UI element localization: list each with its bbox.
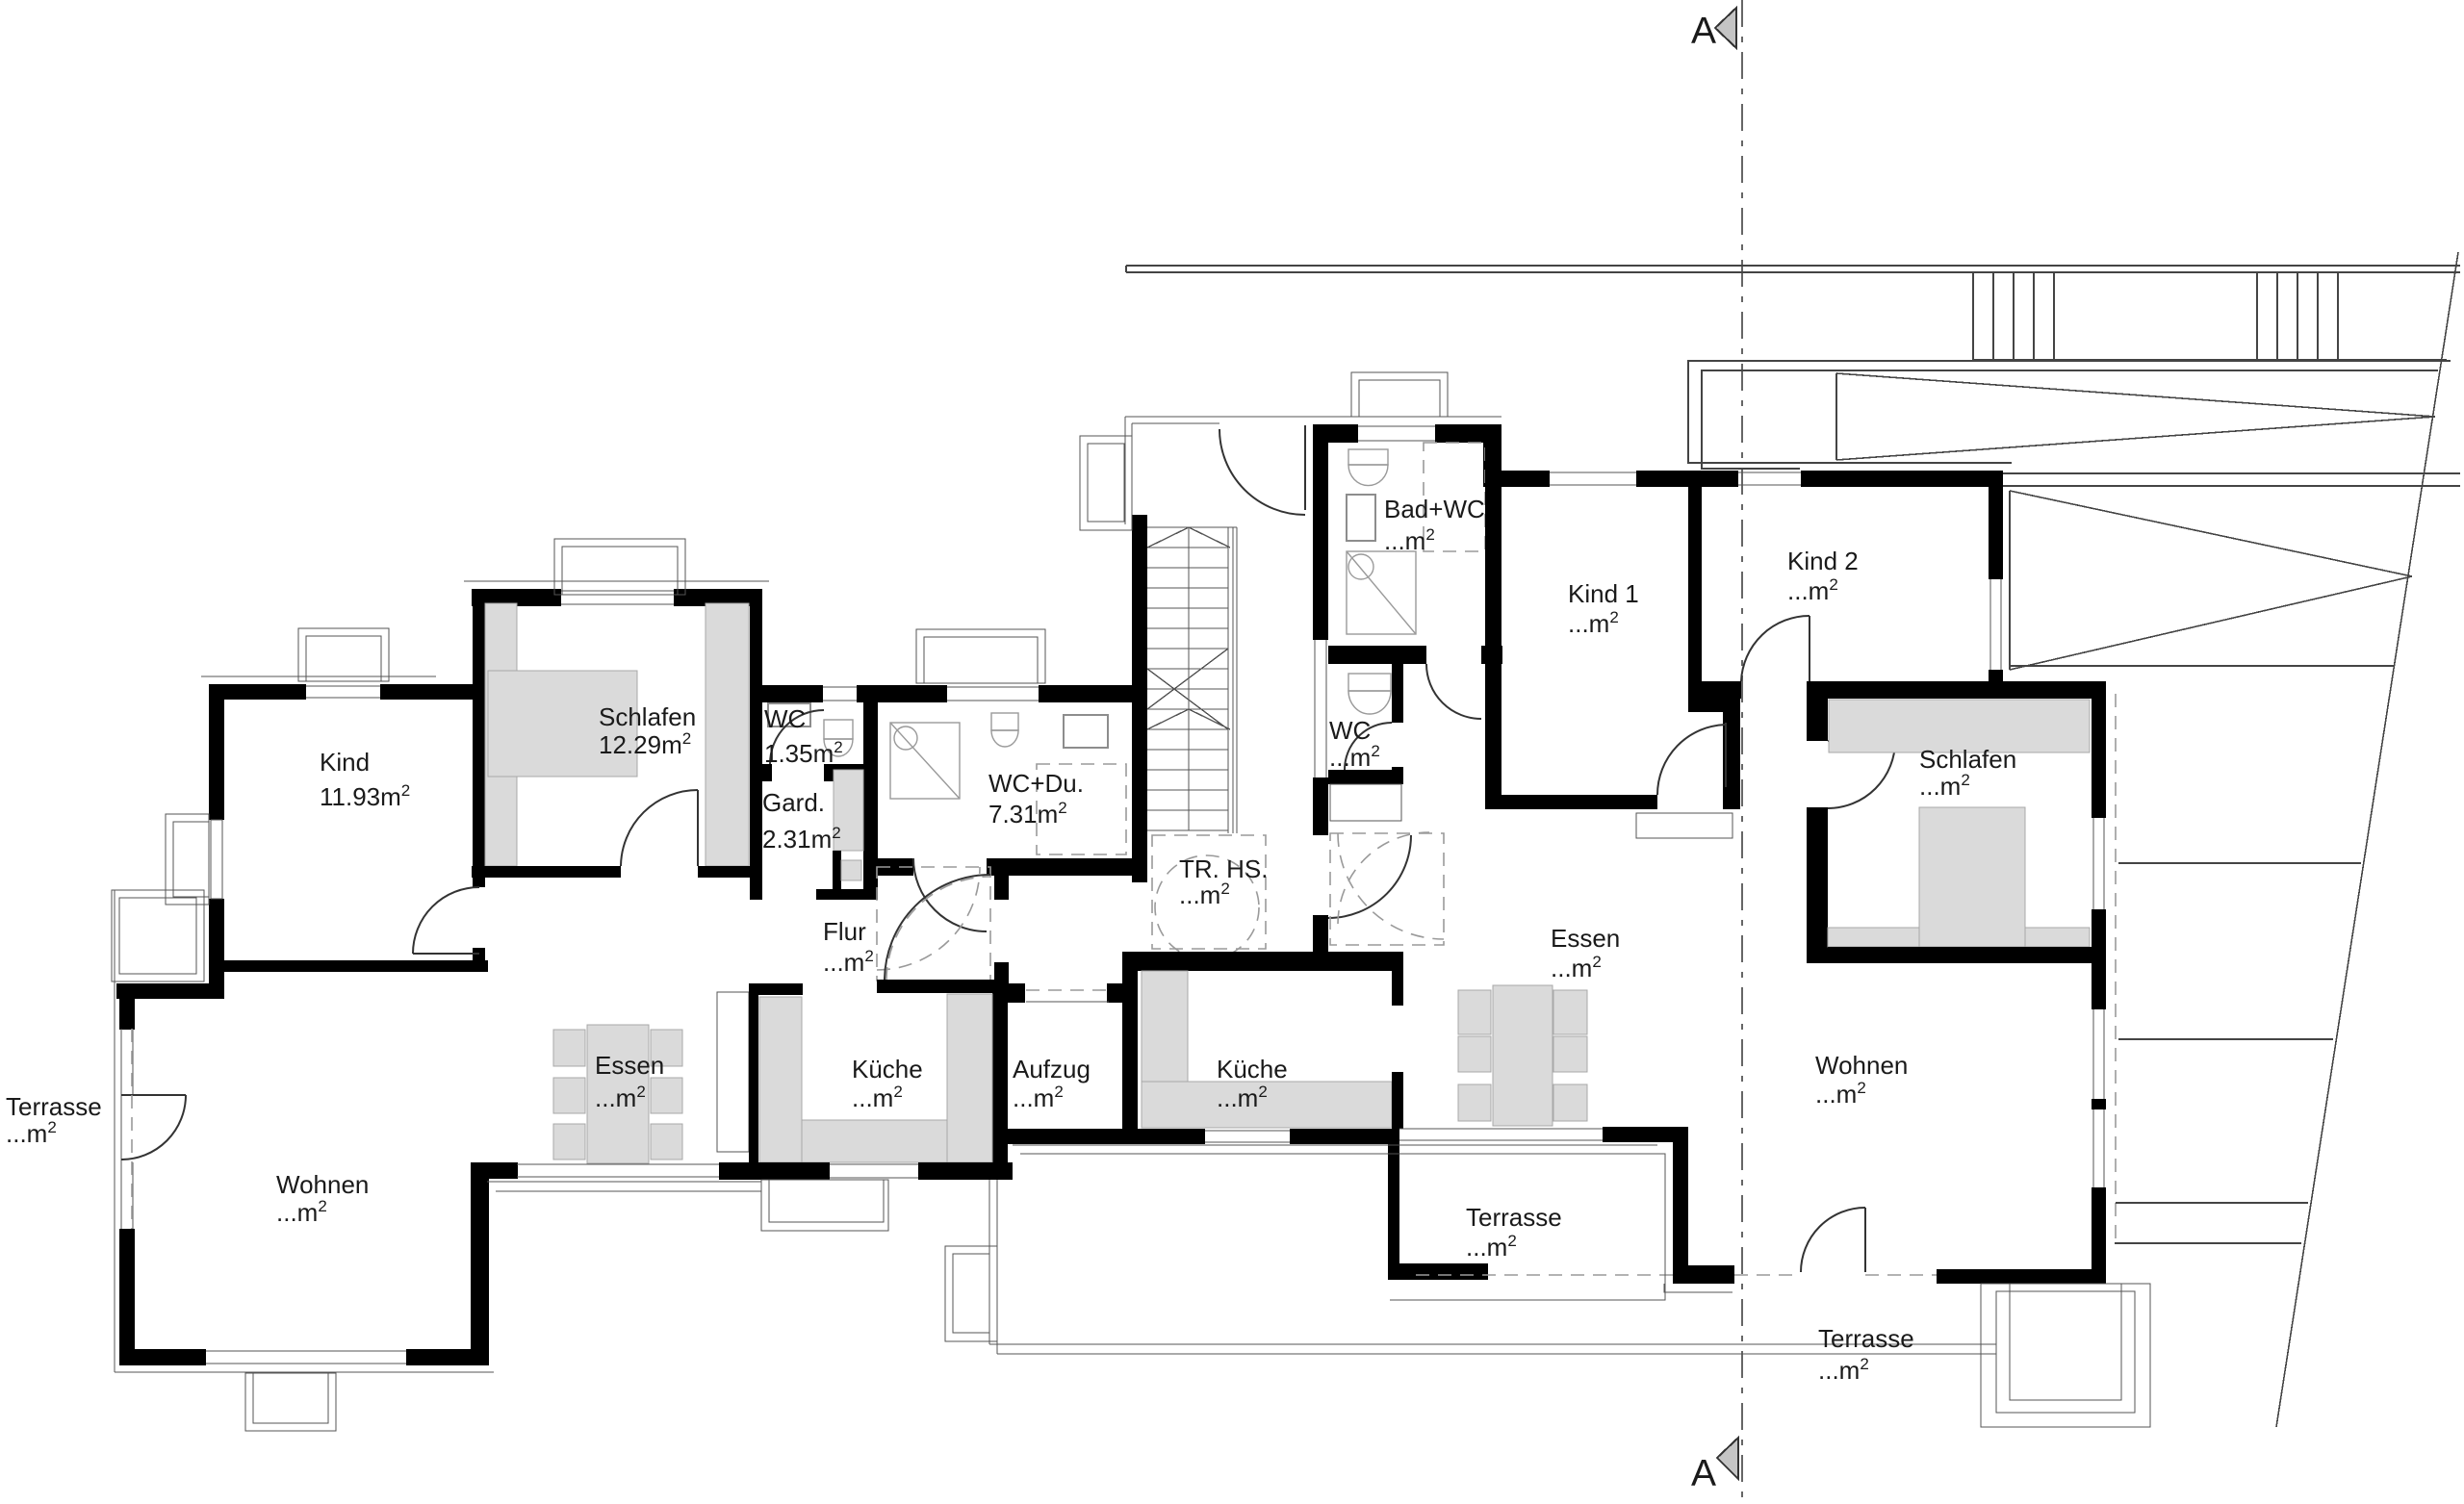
svg-text:WC: WC: [764, 704, 806, 733]
svg-text:WC: WC: [1329, 716, 1371, 745]
svg-text:Terrasse: Terrasse: [1466, 1203, 1562, 1232]
svg-text:Kind: Kind: [320, 748, 370, 777]
svg-text:Aufzug: Aufzug: [1013, 1055, 1091, 1083]
svg-text:Terrasse: Terrasse: [6, 1092, 102, 1121]
svg-text:Terrasse: Terrasse: [1818, 1324, 1914, 1353]
svg-text:12.29m2: 12.29m2: [599, 729, 691, 759]
svg-text:2.31m2: 2.31m2: [762, 824, 841, 854]
svg-text:Schlafen: Schlafen: [599, 702, 696, 731]
svg-text:Kind 2: Kind 2: [1787, 547, 1859, 575]
svg-text:Wohnen: Wohnen: [276, 1170, 369, 1199]
svg-text:Kind 1: Kind 1: [1568, 579, 1639, 608]
svg-text:Küche: Küche: [1217, 1055, 1288, 1083]
svg-text:Essen: Essen: [1551, 924, 1620, 953]
svg-text:11.93m2: 11.93m2: [320, 781, 410, 811]
svg-text:Essen: Essen: [595, 1051, 664, 1080]
svg-text:A: A: [1691, 1453, 1716, 1494]
svg-text:Küche: Küche: [852, 1055, 923, 1083]
svg-text:1.35m2: 1.35m2: [764, 738, 843, 768]
svg-text:Schlafen: Schlafen: [1919, 745, 2016, 774]
svg-text:7.31m2: 7.31m2: [988, 799, 1067, 828]
svg-text:Wohnen: Wohnen: [1815, 1051, 1908, 1080]
svg-text:Gard.: Gard.: [762, 788, 825, 817]
svg-text:Bad+WC: Bad+WC: [1384, 495, 1485, 523]
svg-text:Flur: Flur: [823, 917, 866, 946]
svg-text:A: A: [1691, 11, 1716, 52]
svg-text:WC+Du.: WC+Du.: [988, 769, 1084, 798]
